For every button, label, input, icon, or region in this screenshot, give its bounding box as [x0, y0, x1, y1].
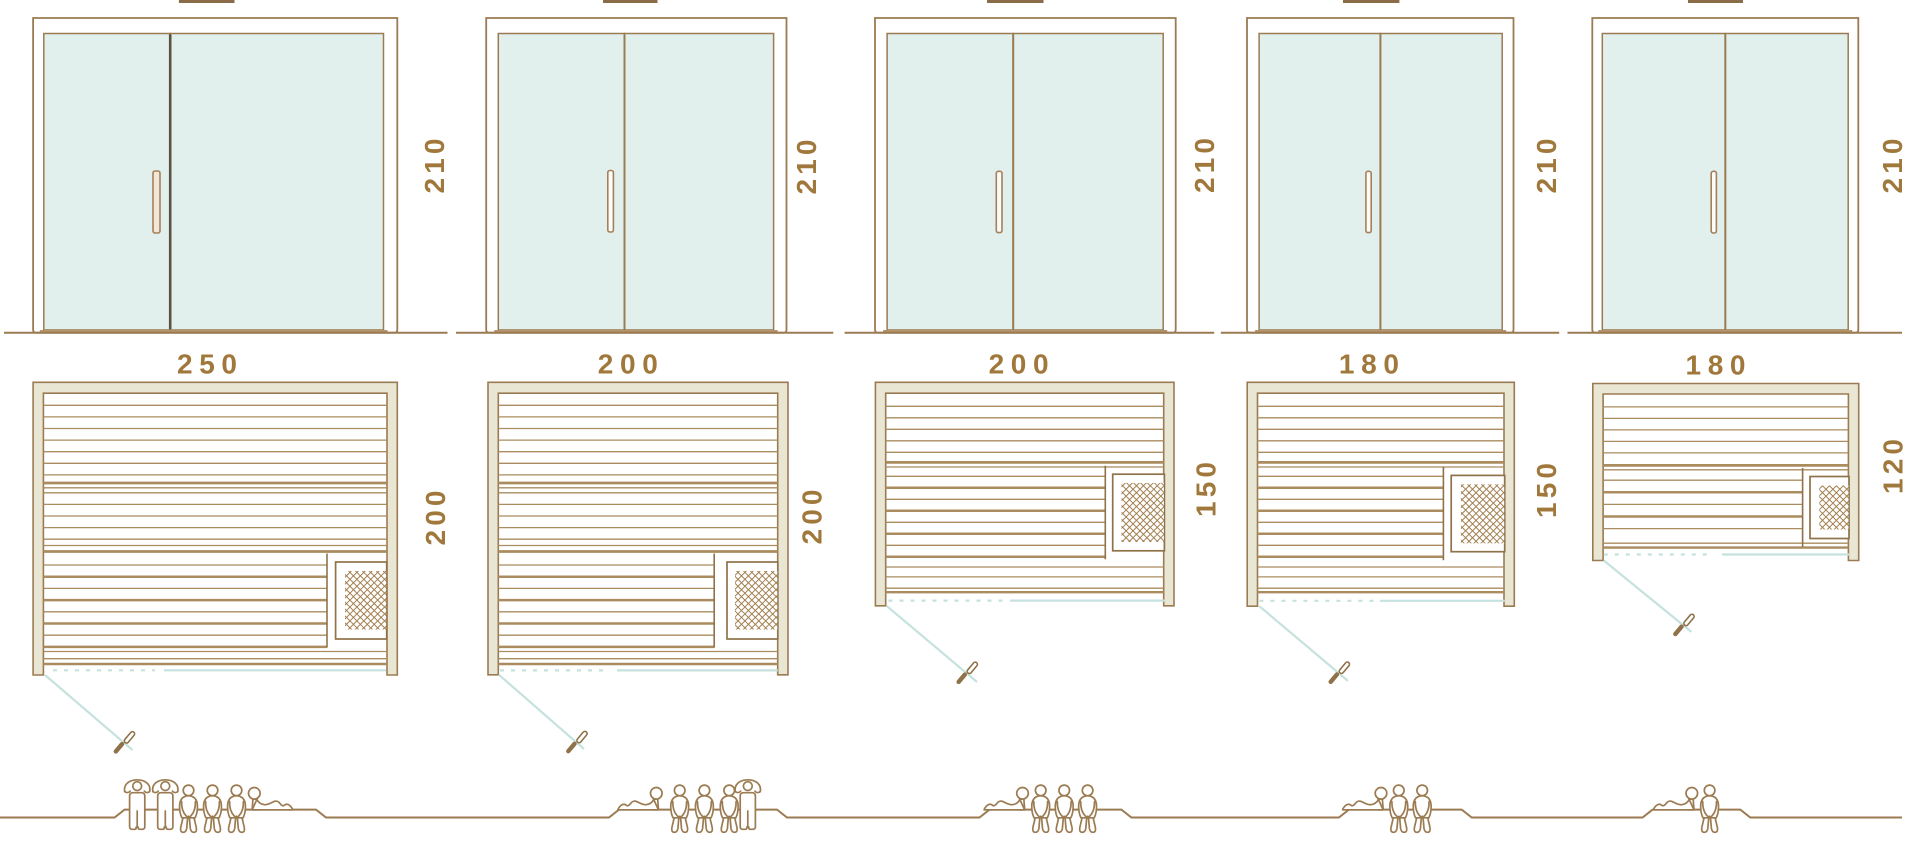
svg-text:250: 250 [177, 349, 237, 380]
svg-text:200: 200 [989, 349, 1049, 380]
svg-text:200: 200 [598, 349, 658, 380]
svg-text:150: 150 [1190, 462, 1221, 517]
svg-text:210: 210 [1877, 139, 1908, 194]
svg-text:150: 150 [1531, 463, 1562, 518]
svg-text:210: 210 [1189, 138, 1220, 193]
svg-text:180: 180 [1339, 349, 1399, 380]
svg-text:200: 200 [420, 491, 451, 546]
svg-text:180: 180 [1686, 350, 1746, 381]
svg-text:120: 120 [1877, 439, 1908, 494]
svg-text:200: 200 [797, 490, 828, 545]
svg-text:210: 210 [1531, 139, 1562, 194]
svg-text:210: 210 [791, 140, 822, 195]
svg-text:210: 210 [419, 139, 450, 194]
